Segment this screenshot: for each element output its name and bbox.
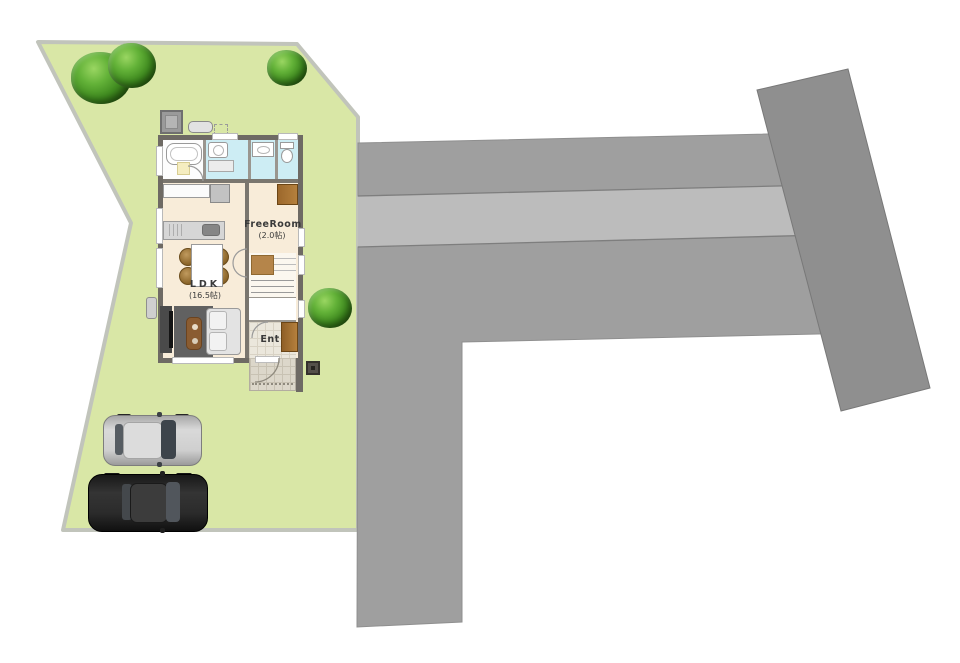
freeroom-label: FreeRoom (2.0帖) (244, 219, 300, 241)
road-lower-area (357, 234, 862, 627)
ldk-label: LDK (16.5帖) (175, 279, 235, 301)
sofa (206, 308, 241, 355)
stair-lower-treads (251, 275, 294, 296)
tree-3 (267, 50, 307, 86)
black-car (88, 474, 206, 530)
porch-step-dots (252, 383, 293, 385)
refrigerator (210, 184, 230, 203)
black-car-windshield (166, 482, 180, 522)
table-item-1 (192, 324, 198, 330)
toilet-tank (280, 142, 294, 149)
room-washroom (205, 140, 250, 182)
freeroom-name: FreeRoom (244, 219, 300, 230)
coffee-table (186, 317, 202, 350)
wall-hall-toilet (275, 140, 278, 182)
washing-machine (208, 142, 228, 158)
silver-car-rear-window (115, 424, 123, 455)
bathtub-inner (170, 147, 198, 161)
freeroom-area: (2.0帖) (244, 230, 300, 241)
silver-car (103, 415, 200, 464)
window-stairs-east (298, 255, 305, 275)
silver-car-mirror-bottom (157, 462, 162, 467)
stairs (249, 253, 296, 297)
sofa-cushion-2 (209, 332, 227, 351)
road-upper-lane (358, 132, 862, 196)
silver-car-mirror-top (157, 412, 162, 417)
shoe-cabinet (281, 322, 298, 352)
window-freeroom-east (298, 228, 305, 247)
ground-layer (0, 0, 960, 663)
black-car-roof (130, 483, 168, 523)
closet (277, 184, 298, 205)
front-door-opening (255, 356, 280, 363)
washer-drum (213, 145, 224, 156)
road-seam-top (358, 184, 862, 196)
window-hall-east (298, 300, 305, 318)
tree-4 (308, 288, 352, 328)
washbasin (252, 142, 274, 157)
wall-bath-washroom (203, 140, 206, 182)
kitchen-island (163, 221, 225, 240)
washbasin-bowl (257, 146, 270, 154)
window-living (156, 248, 163, 288)
road-seam-bottom (358, 234, 862, 247)
toilet-bowl (281, 149, 293, 163)
tree-2 (108, 43, 156, 88)
heat-pump-unit (188, 121, 213, 133)
door-arc-layer (0, 0, 960, 663)
utility-post (306, 361, 320, 375)
island-drainer (166, 224, 184, 236)
black-car-mirror-bottom (160, 528, 165, 533)
window-bathroom (156, 146, 163, 176)
wall-washroom-hall (248, 140, 251, 182)
room-bathroom (163, 140, 205, 182)
sofa-cushion-1 (209, 311, 227, 330)
window-washroom-north (212, 133, 238, 140)
stair-landing (251, 255, 274, 275)
kitchen-counter (163, 184, 210, 198)
tv (169, 311, 173, 348)
water-heater-unit (160, 110, 183, 134)
window-kitchen (156, 208, 163, 244)
site-plan-canvas: FreeRoom (2.0帖) Ent LDK (16.5帖) (0, 0, 960, 663)
black-car-mirror-top (160, 471, 165, 476)
ldk-name: LDK (175, 279, 235, 290)
silver-car-roof (123, 422, 163, 459)
water-heater-top (165, 115, 178, 129)
window-toilet-north (278, 133, 298, 140)
kitchen-sink (202, 224, 220, 236)
window-ldk-south (172, 357, 234, 364)
silver-car-windshield (161, 420, 176, 459)
table-item-2 (192, 338, 198, 344)
washroom-cabinet (208, 160, 234, 172)
diagonal-road-block (757, 69, 930, 411)
utility-post-core (311, 366, 315, 370)
ac-outdoor-unit (146, 297, 157, 319)
road-center-band (358, 184, 862, 247)
bath-mat (177, 162, 190, 175)
porch-right-wall (296, 358, 303, 392)
ldk-area: (16.5帖) (175, 290, 235, 301)
room-toilet (277, 140, 298, 182)
room-hallway-basin (250, 140, 277, 182)
stair-upper-treads (274, 253, 296, 275)
room-hall (249, 298, 296, 320)
